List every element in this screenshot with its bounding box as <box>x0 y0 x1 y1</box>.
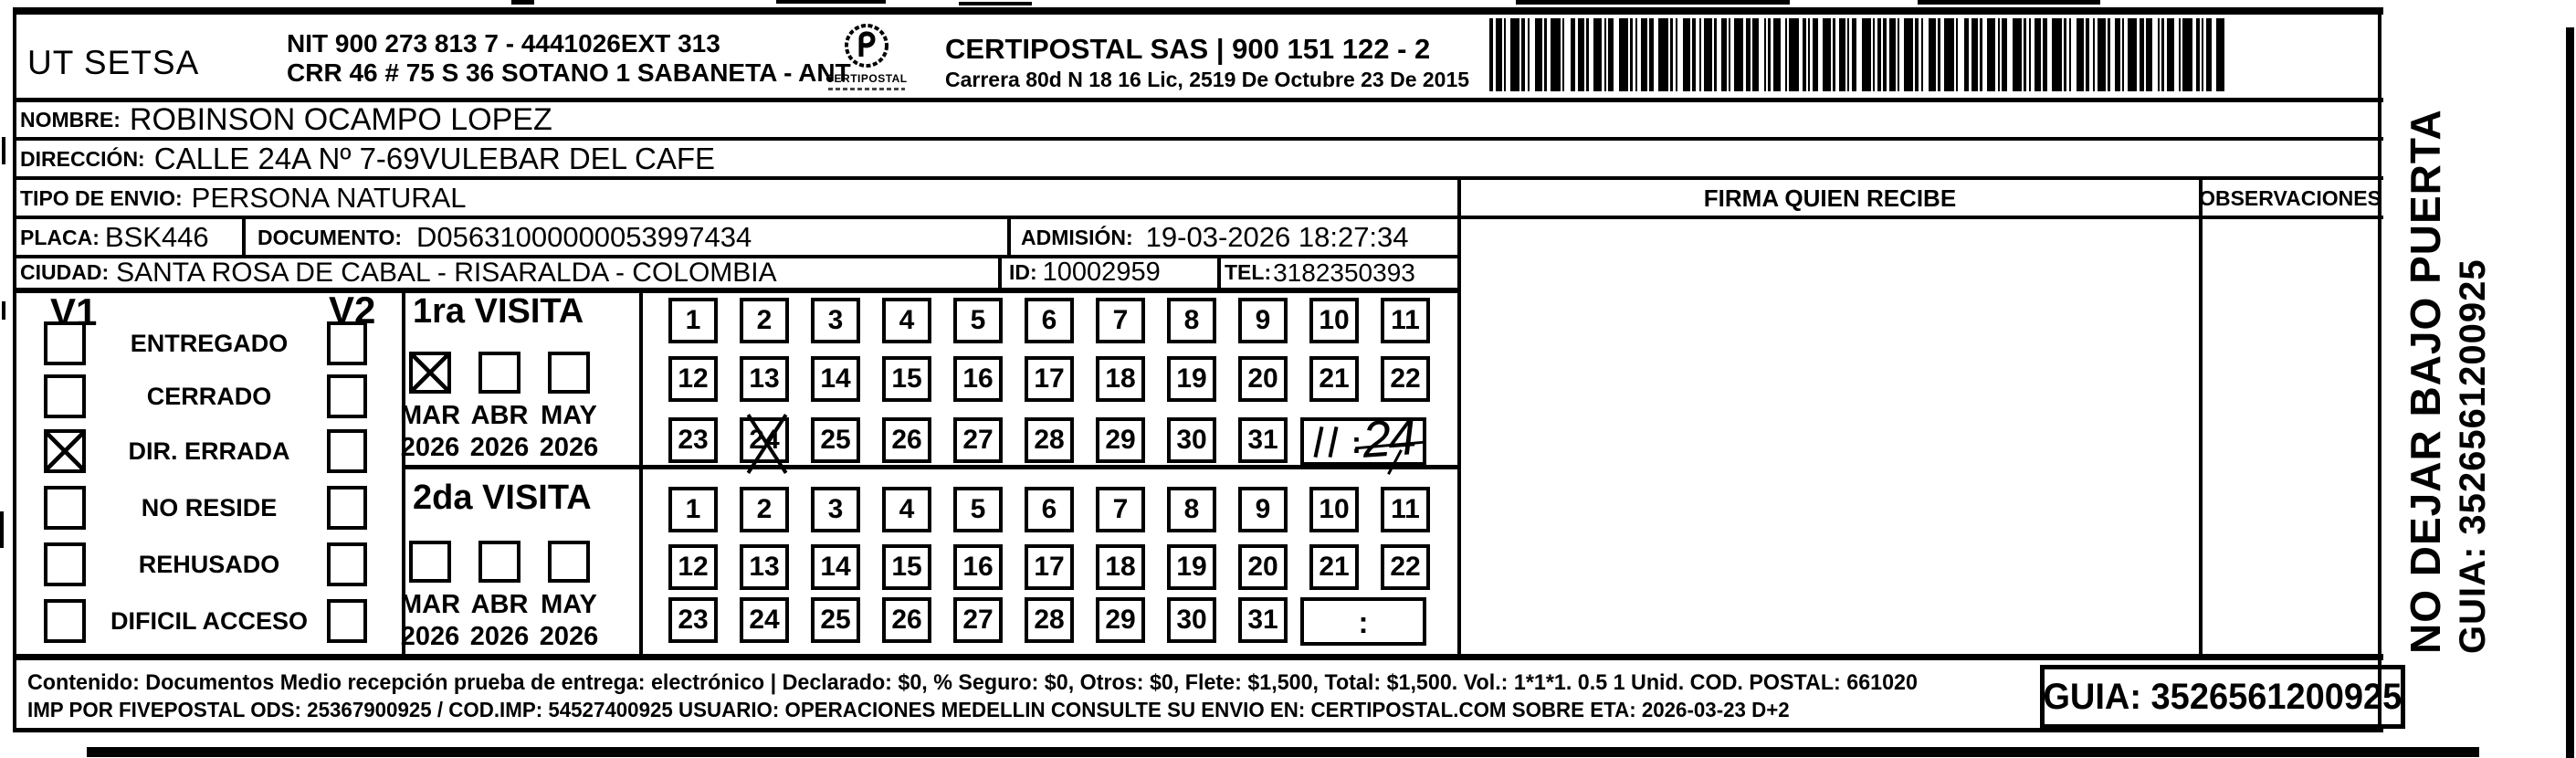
year-label: 2026 <box>468 622 531 652</box>
border-line <box>1457 179 1461 658</box>
year-label: 2026 <box>399 433 461 463</box>
day-number: 6 <box>1042 305 1057 336</box>
field-cell-id: ID: 10002959 <box>1009 257 1161 289</box>
day-cell[interactable]: 14 <box>811 544 860 590</box>
border-line <box>13 7 2383 15</box>
day-cell[interactable]: 30 <box>1167 597 1216 643</box>
day-cell[interactable]: 28 <box>1025 417 1074 463</box>
day-number: 11 <box>1391 305 1420 336</box>
status-row: CERRADO <box>13 374 402 418</box>
firma-quien-recibe-header: FIRMA QUIEN RECIBE <box>1461 180 2199 217</box>
day-cell[interactable]: 14 <box>811 356 860 402</box>
day-cell[interactable]: 6 <box>1025 298 1074 343</box>
status-checkbox-v2[interactable] <box>327 321 367 365</box>
status-checkbox-v1[interactable] <box>44 374 86 418</box>
day-cell[interactable]: 17 <box>1025 356 1074 402</box>
status-label: DIR. ERRADA <box>100 429 319 473</box>
day-number: 27 <box>962 605 993 636</box>
status-checkbox-v2[interactable] <box>327 599 367 643</box>
observations-area[interactable] <box>2203 219 2378 656</box>
status-row: DIFICIL ACCESO <box>13 599 402 643</box>
day-number: 5 <box>971 494 986 525</box>
status-checkbox-v2[interactable] <box>327 486 367 530</box>
status-checkbox-v2[interactable] <box>327 429 367 473</box>
month-checkbox[interactable] <box>409 352 451 394</box>
status-row: REHUSADO <box>13 542 402 586</box>
day-number: 16 <box>962 363 993 395</box>
day-number: 8 <box>1184 494 1200 525</box>
day-cell[interactable]: 23 <box>668 597 718 643</box>
day-cell[interactable]: 19 <box>1167 356 1216 402</box>
day-cell[interactable]: 16 <box>953 544 1003 590</box>
day-number: 25 <box>820 605 850 636</box>
field-cell-ciudad: CIUDAD: SANTA ROSA DE CABAL - RISARALDA … <box>20 257 777 289</box>
month-option: MAY2026 <box>538 541 600 652</box>
day-number: 12 <box>678 552 708 583</box>
day-cell[interactable]: 27 <box>953 417 1003 463</box>
id-value: 10002959 <box>1043 258 1161 288</box>
year-label: 2026 <box>538 622 600 652</box>
day-number: 18 <box>1105 363 1135 395</box>
id-label: ID: <box>1009 260 1037 285</box>
day-number: 25 <box>820 425 850 456</box>
handwritten-hour-stroke <box>1314 426 1324 458</box>
day-cell[interactable]: 25 <box>811 417 860 463</box>
border-line <box>13 176 2383 180</box>
field-cell-admision: ADMISIÓN: 19-03-2026 18:27:34 <box>1021 219 1409 256</box>
day-cell[interactable]: 18 <box>1096 356 1145 402</box>
scan-mark <box>1918 0 2100 5</box>
direccion-label: DIRECCIÓN: <box>20 147 145 172</box>
placa-label: PLACA: <box>20 226 100 250</box>
month-label: MAR <box>399 401 461 431</box>
day-number: 7 <box>1113 305 1129 336</box>
status-checkbox-v1[interactable] <box>44 486 86 530</box>
month-option: MAY2026 <box>538 352 600 463</box>
day-cell[interactable]: 24 <box>740 417 789 463</box>
visit1-title: 1ra VISITA <box>413 292 584 332</box>
day-number: 31 <box>1247 425 1277 456</box>
day-number: 7 <box>1113 494 1129 525</box>
year-label: 2026 <box>399 622 461 652</box>
border-line <box>13 7 16 732</box>
day-cell[interactable]: 10 <box>1309 487 1359 532</box>
day-cell[interactable]: 9 <box>1238 487 1288 532</box>
border-line <box>402 465 1461 469</box>
footer-contents-line: Contenido: Documentos Medio recepción pr… <box>27 670 1918 696</box>
day-number: 1 <box>686 305 701 336</box>
handwritten-minutes: 24 <box>1361 406 1416 469</box>
month-label: MAY <box>538 590 600 620</box>
day-number: 21 <box>1319 363 1349 395</box>
scan-mark <box>776 0 886 4</box>
side-note: NO DEJAR BAJO PUERTA GUIA: 3526561200925 <box>2401 106 2503 654</box>
day-number: 20 <box>1247 552 1277 583</box>
border-line <box>998 255 1002 291</box>
day-number: 2 <box>757 494 773 525</box>
status-label: REHUSADO <box>100 542 319 586</box>
documento-value: D05631000000053997434 <box>416 221 752 254</box>
day-cell[interactable]: 28 <box>1025 597 1074 643</box>
month-label: MAY <box>538 401 600 431</box>
day-number: 22 <box>1390 363 1420 395</box>
border-line <box>242 216 246 258</box>
day-cell[interactable]: 8 <box>1167 487 1216 532</box>
status-label: NO RESIDE <box>100 486 319 530</box>
month-option: MAR2026 <box>399 541 461 652</box>
certipostal-name: CERTIPOSTAL SAS | 900 151 122 - 2 <box>945 33 1430 66</box>
day-number: 3 <box>828 494 844 525</box>
day-number: 18 <box>1105 552 1135 583</box>
day-cell[interactable]: 21 <box>1309 356 1359 402</box>
tel-label: TEL: <box>1225 260 1271 285</box>
day-number: 29 <box>1105 425 1135 456</box>
field-row-tipo-envio: TIPO DE ENVIO: PERSONA NATURAL <box>20 180 467 216</box>
day-cell[interactable]: 17 <box>1025 544 1074 590</box>
calendar-visit2: 1234567891011121314151617181920212223242… <box>639 469 1461 656</box>
status-checkbox-v1[interactable] <box>44 321 86 365</box>
scan-mark <box>0 511 4 548</box>
border-line <box>1217 255 1221 291</box>
day-cell[interactable]: 4 <box>882 487 931 532</box>
border-line <box>13 255 1461 258</box>
ciudad-label: CIUDAD: <box>20 260 109 285</box>
time-colon: : <box>1304 605 1423 640</box>
logo-tagline-illegible <box>828 88 905 90</box>
day-cell[interactable]: 11 <box>1381 298 1430 343</box>
day-cell[interactable]: 5 <box>953 298 1003 343</box>
day-cell[interactable]: 7 <box>1096 487 1145 532</box>
border-line <box>13 728 2383 732</box>
day-number: 6 <box>1042 494 1057 525</box>
day-cell[interactable]: 15 <box>882 356 931 402</box>
day-cell[interactable]: 26 <box>882 597 931 643</box>
border-line <box>13 654 2383 660</box>
nombre-value: ROBINSON OCAMPO LOPEZ <box>130 102 552 138</box>
day-number: 23 <box>678 425 708 456</box>
day-cell[interactable]: 12 <box>668 544 718 590</box>
day-cell[interactable]: 16 <box>953 356 1003 402</box>
day-number: 17 <box>1034 552 1064 583</box>
day-number: 4 <box>899 494 915 525</box>
month-option: ABR2026 <box>468 541 531 652</box>
logo-wordmark: CERTIPOSTAL <box>823 72 910 85</box>
day-cell[interactable]: 19 <box>1167 544 1216 590</box>
status-checkbox-v2[interactable] <box>327 374 367 418</box>
day-number: 27 <box>962 425 993 456</box>
day-number: 24 <box>749 605 779 636</box>
day-cell[interactable]: 22 <box>1381 544 1430 590</box>
visit2-title: 2da VISITA <box>413 479 592 518</box>
day-cell[interactable]: 23 <box>668 417 718 463</box>
day-number: 31 <box>1247 605 1277 636</box>
border-line <box>2199 179 2203 658</box>
day-number: 13 <box>749 552 779 583</box>
year-label: 2026 <box>468 433 531 463</box>
border-line <box>1007 216 1011 258</box>
day-cell[interactable]: 8 <box>1167 298 1216 343</box>
day-number: 22 <box>1390 552 1420 583</box>
status-row: ENTREGADO <box>13 321 402 365</box>
border-line <box>13 216 2383 219</box>
day-cell[interactable]: 13 <box>740 356 789 402</box>
field-row-nombre: NOMBRE: ROBINSON OCAMPO LOPEZ <box>20 101 552 138</box>
day-cell[interactable]: 20 <box>1238 544 1288 590</box>
month-label: ABR <box>468 401 531 431</box>
day-number: 23 <box>678 605 708 636</box>
nombre-label: NOMBRE: <box>20 108 121 132</box>
border-line <box>2378 7 2381 732</box>
visit1-month-options: MAR2026ABR2026MAY2026 <box>399 352 600 463</box>
day-number: 28 <box>1034 605 1064 636</box>
day-cell[interactable]: 24 <box>740 597 789 643</box>
day-number: 2 <box>757 305 773 336</box>
tel-value: 3182350393 <box>1273 258 1415 288</box>
day-number: 9 <box>1256 305 1271 336</box>
direccion-value: CALLE 24A Nº 7-69VULEBAR DEL CAFE <box>154 142 715 176</box>
status-checkbox-v1[interactable] <box>44 542 86 586</box>
tipo-envio-label: TIPO DE ENVIO: <box>20 186 183 211</box>
day-number: 16 <box>962 552 993 583</box>
day-number: 4 <box>899 305 915 336</box>
day-number: 26 <box>891 605 921 636</box>
year-label: 2026 <box>538 433 600 463</box>
delivery-form-scan: UT SETSA NIT 900 273 813 7 - 4441026EXT … <box>0 0 2576 758</box>
day-number: 1 <box>686 494 701 525</box>
day-cell[interactable]: 13 <box>740 544 789 590</box>
no-dejar-bajo-puerta-note: NO DEJAR BAJO PUERTA <box>2401 106 2450 654</box>
nit-line: NIT 900 273 813 7 - 4441026EXT 313 <box>287 29 851 58</box>
day-number: 30 <box>1176 605 1206 636</box>
day-cell[interactable]: 4 <box>882 298 931 343</box>
day-number: 29 <box>1105 605 1135 636</box>
time-cell[interactable]: : <box>1300 597 1426 646</box>
admision-label: ADMISIÓN: <box>1021 226 1133 250</box>
side-guia-number: GUIA: 3526561200925 <box>2450 106 2496 654</box>
month-checkbox[interactable] <box>548 352 590 394</box>
calendar-visit1: 1234567891011121314151617181920212223242… <box>639 290 1461 466</box>
border-line <box>13 98 2383 102</box>
day-cell[interactable]: 1 <box>668 298 718 343</box>
day-number: 9 <box>1256 494 1271 525</box>
day-cell[interactable]: 5 <box>953 487 1003 532</box>
day-cell[interactable]: 22 <box>1381 356 1430 402</box>
day-cell[interactable]: 12 <box>668 356 718 402</box>
day-cell[interactable]: 9 <box>1238 298 1288 343</box>
border-line <box>13 288 1461 293</box>
field-cell-placa: PLACA: BSK446 <box>20 219 209 256</box>
certipostal-logo: CERTIPOSTAL <box>823 22 910 90</box>
day-number: 3 <box>828 305 844 336</box>
guia-number: GUIA: 3526561200925 <box>2044 677 2403 718</box>
footer-imp-line: IMP POR FIVEPOSTAL ODS: 25367900925 / CO… <box>27 698 1790 722</box>
tipo-envio-value: PERSONA NATURAL <box>192 182 467 215</box>
status-checkbox-v1[interactable] <box>44 429 86 473</box>
month-checkbox[interactable] <box>548 541 590 583</box>
ciudad-value: SANTA ROSA DE CABAL - RISARALDA - COLOMB… <box>116 258 777 289</box>
scan-mark <box>511 0 534 5</box>
day-number: 30 <box>1176 425 1206 456</box>
month-option: ABR2026 <box>468 352 531 463</box>
status-row: NO RESIDE <box>13 486 402 530</box>
sender-address-block: NIT 900 273 813 7 - 4441026EXT 313 CRR 4… <box>287 29 851 88</box>
status-label: ENTREGADO <box>100 321 319 365</box>
border-line <box>13 137 2383 141</box>
day-cell[interactable]: 29 <box>1096 597 1145 643</box>
month-checkbox[interactable] <box>478 352 520 394</box>
signature-area[interactable] <box>1461 219 2199 656</box>
status-checkbox-v2[interactable] <box>327 542 367 586</box>
handwritten-hour-stroke <box>1329 426 1339 458</box>
day-cell[interactable]: 31 <box>1238 417 1288 463</box>
day-cell[interactable]: 25 <box>811 597 860 643</box>
documento-label: DOCUMENTO: <box>258 226 402 250</box>
time-colon: : <box>1351 426 1362 460</box>
day-number: 14 <box>820 363 850 395</box>
day-number: 13 <box>749 363 779 395</box>
day-cell[interactable]: 3 <box>811 298 860 343</box>
status-checkbox-v1[interactable] <box>44 599 86 643</box>
observaciones-header: OBSERVACIONES <box>2203 180 2378 217</box>
month-label: MAR <box>399 590 461 620</box>
month-checkbox[interactable] <box>478 541 520 583</box>
day-number: 28 <box>1034 425 1064 456</box>
day-cell[interactable]: 2 <box>740 298 789 343</box>
day-cell[interactable]: 26 <box>882 417 931 463</box>
field-row-direccion: DIRECCIÓN: CALLE 24A Nº 7-69VULEBAR DEL … <box>20 141 715 177</box>
scan-mark <box>1516 0 1790 5</box>
barcode-icon <box>1489 18 2231 91</box>
scan-mark <box>959 2 1032 5</box>
day-cell[interactable]: 21 <box>1309 544 1359 590</box>
scan-mark <box>2 137 5 164</box>
day-number: 26 <box>891 425 921 456</box>
day-cell[interactable]: 20 <box>1238 356 1288 402</box>
status-row: DIR. ERRADA <box>13 429 402 473</box>
field-cell-documento: DOCUMENTO: D05631000000053997434 <box>258 219 752 256</box>
placa-value: BSK446 <box>105 221 209 254</box>
day-number: 19 <box>1176 363 1206 395</box>
certipostal-logo-icon <box>843 58 890 73</box>
day-cell[interactable]: 18 <box>1096 544 1145 590</box>
company-name: UT SETSA <box>27 44 199 82</box>
border-line <box>639 288 643 658</box>
day-number: 11 <box>1391 494 1420 525</box>
day-number: 12 <box>678 363 708 395</box>
day-number: 14 <box>820 552 850 583</box>
day-cell[interactable]: 10 <box>1309 298 1359 343</box>
day-number: 20 <box>1247 363 1277 395</box>
day-cell[interactable]: 2 <box>740 487 789 532</box>
day-cell[interactable]: 7 <box>1096 298 1145 343</box>
month-checkbox[interactable] <box>409 541 451 583</box>
day-number: 15 <box>891 363 921 395</box>
day-cell[interactable]: 3 <box>811 487 860 532</box>
month-label: ABR <box>468 590 531 620</box>
day-number: 10 <box>1319 305 1349 336</box>
day-cell[interactable]: 29 <box>1096 417 1145 463</box>
certipostal-address: Carrera 80d N 18 16 Lic, 2519 De Octubre… <box>945 68 1469 92</box>
status-label: CERRADO <box>100 374 319 418</box>
day-number: 5 <box>971 305 986 336</box>
admision-value: 19-03-2026 18:27:34 <box>1146 221 1409 254</box>
time-cell[interactable]: :24 <box>1300 417 1426 466</box>
scan-mark <box>2 301 5 320</box>
day-cell[interactable]: 6 <box>1025 487 1074 532</box>
day-number: 15 <box>891 552 921 583</box>
field-cell-tel: TEL: 3182350393 <box>1225 257 1415 289</box>
day-number: 8 <box>1184 305 1200 336</box>
address-line: CRR 46 # 75 S 36 SOTANO 1 SABANETA - ANT <box>287 58 851 88</box>
day-cell[interactable]: 27 <box>953 597 1003 643</box>
day-number: 19 <box>1176 552 1206 583</box>
day-cell[interactable]: 31 <box>1238 597 1288 643</box>
day-cell[interactable]: 1 <box>668 487 718 532</box>
border-line <box>402 288 405 658</box>
scan-mark <box>87 747 2479 757</box>
day-cell[interactable]: 11 <box>1381 487 1430 532</box>
visit2-month-options: MAR2026ABR2026MAY2026 <box>399 541 600 652</box>
month-option: MAR2026 <box>399 352 461 463</box>
visit-status-checklist: ENTREGADOCERRADODIR. ERRADANO RESIDEREHU… <box>13 290 402 654</box>
day-cell[interactable]: 15 <box>882 544 931 590</box>
day-number: 10 <box>1319 494 1349 525</box>
guia-box: GUIA: 3526561200925 <box>2040 665 2405 729</box>
day-cell[interactable]: 30 <box>1167 417 1216 463</box>
scan-mark <box>2566 27 2574 758</box>
day-number: 17 <box>1034 363 1064 395</box>
status-label: DIFICIL ACCESO <box>100 599 319 643</box>
day-number: 21 <box>1319 552 1349 583</box>
